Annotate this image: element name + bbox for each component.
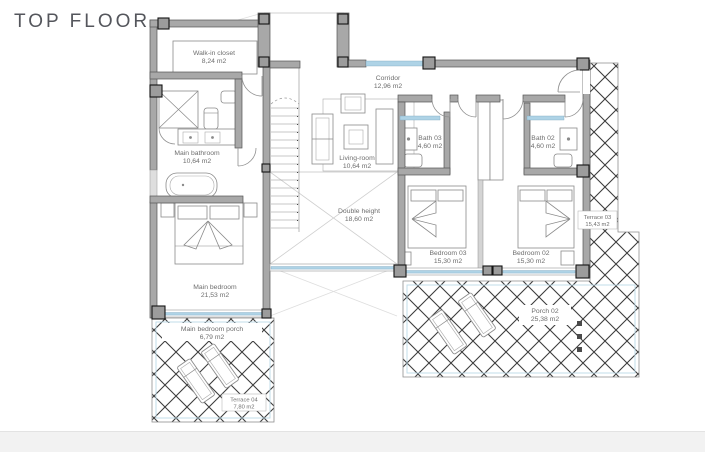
- nightstand: [244, 203, 257, 217]
- vanity: [178, 129, 238, 145]
- door-swings: [159, 70, 583, 166]
- coffee-table: [344, 125, 368, 149]
- room-label-bath-03: Bath 03: [418, 135, 442, 142]
- room-label-terrace-04: Terrace 04: [230, 398, 258, 404]
- svg-text:7,80 m2: 7,80 m2: [234, 405, 255, 411]
- room-label-bedroom-03: Bedroom 03: [429, 250, 466, 257]
- nightstand: [161, 203, 174, 217]
- svg-text:12,96 m2: 12,96 m2: [374, 83, 403, 90]
- room-label-main-bathroom: Main bathroom: [174, 150, 220, 157]
- footer-strip: [0, 432, 705, 452]
- page-title: TOP FLOOR: [14, 11, 150, 32]
- room-label-terrace-03: Terrace 03: [584, 215, 611, 221]
- room-label-walk-in-closet: Walk-in closet: [193, 50, 235, 57]
- svg-text:18,60 m2: 18,60 m2: [345, 216, 374, 223]
- sink: [221, 91, 237, 103]
- svg-text:10,64 m2: 10,64 m2: [183, 158, 212, 165]
- svg-text:4,60 m2: 4,60 m2: [531, 143, 556, 150]
- svg-text:25,38 m2: 25,38 m2: [531, 316, 560, 323]
- svg-text:4,60 m2: 4,60 m2: [418, 143, 443, 150]
- svg-text:15,43 m2: 15,43 m2: [585, 222, 609, 228]
- console-table: [376, 109, 393, 164]
- svg-text:15,30 m2: 15,30 m2: [517, 258, 546, 265]
- room-label-main-bedroom-porch: Main bedroom porch: [181, 326, 244, 333]
- main-bathroom-fixtures: [159, 91, 238, 198]
- room-label-living-room: Living-room: [339, 155, 375, 162]
- nightstand: [561, 251, 574, 265]
- porch-spotlights: [577, 321, 582, 352]
- room-label-double-height: Double height: [338, 208, 380, 215]
- svg-text:10,64 m2: 10,64 m2: [343, 163, 372, 170]
- room-label-bedroom-02: Bedroom 02: [512, 250, 549, 257]
- room-label-main-bedroom: Main bedroom: [193, 284, 237, 291]
- floor-plan-drawing: Walk-in closet 8,24 m2 Main bathroom 10,…: [0, 0, 705, 452]
- svg-text:6,79 m2: 6,79 m2: [200, 334, 225, 341]
- main-bedroom-furniture: [161, 202, 257, 264]
- toilet: [554, 154, 572, 167]
- wardrobes: [478, 100, 503, 270]
- svg-text:8,24 m2: 8,24 m2: [202, 58, 227, 65]
- toilet: [204, 108, 218, 129]
- room-label-corridor: Corridor: [376, 75, 401, 82]
- bathtub: [166, 173, 217, 198]
- svg-text:21,53 m2: 21,53 m2: [201, 292, 230, 299]
- staircase: [271, 68, 299, 232]
- room-label-bath-02: Bath 02: [531, 135, 555, 142]
- room-label-porch-02: Porch 02: [531, 308, 558, 315]
- svg-text:15,30 m2: 15,30 m2: [434, 258, 463, 265]
- floor-plan-page: Walk-in closet 8,24 m2 Main bathroom 10,…: [0, 0, 705, 452]
- toilet: [404, 154, 422, 167]
